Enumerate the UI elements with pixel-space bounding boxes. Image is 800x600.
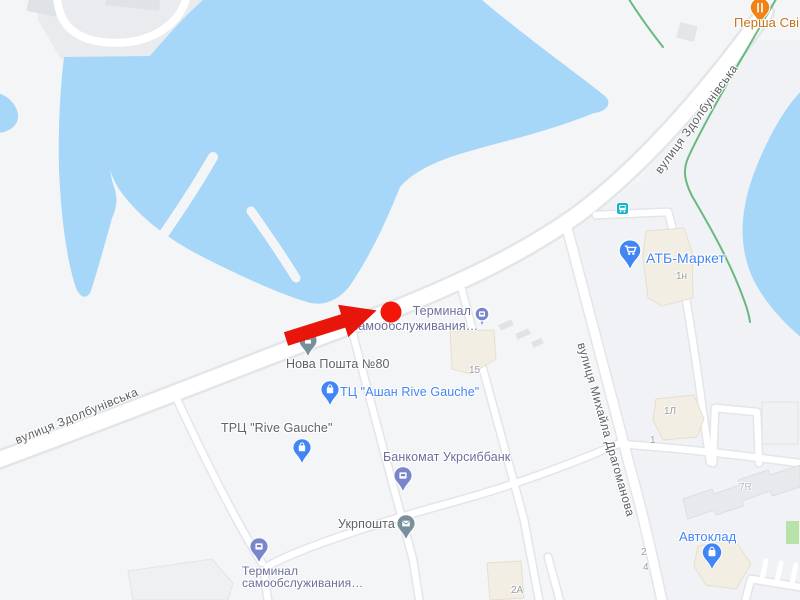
bus-stop-icon[interactable] — [616, 202, 629, 215]
house-number: 1Л — [664, 406, 676, 417]
poi-label-terminal-bottom[interactable]: Терминал самообслуживания… — [242, 566, 363, 589]
house-number: 7R — [739, 482, 752, 493]
atb-market-pin[interactable] — [618, 239, 642, 270]
atm-terminal-icon — [479, 311, 485, 316]
house-number: 4 — [643, 562, 649, 573]
house-number: 2 — [641, 547, 647, 558]
terminal-bottom-pin[interactable] — [249, 537, 269, 563]
poi-label-rive-gauche[interactable]: ТРЦ "Rive Gauche" — [221, 421, 333, 436]
atm-terminal-icon — [255, 543, 262, 549]
nova-poshta-pin[interactable] — [298, 331, 318, 357]
poi-label-avtoklad[interactable]: Автоклад — [679, 529, 736, 544]
parcel-icon — [305, 338, 311, 344]
envelope-icon — [402, 521, 410, 527]
poi-label-auchan[interactable]: ТЦ "Ашан Rive Gauche" — [340, 385, 479, 400]
house-number: 15 — [469, 365, 480, 376]
poi-label-nova-poshta[interactable]: Нова Пошта №80 — [286, 357, 390, 372]
auchan-pin[interactable] — [320, 380, 340, 406]
poi-label-atb-market[interactable]: АТБ-Маркет — [646, 251, 725, 266]
ukrsibbank-atm-pin[interactable] — [393, 466, 413, 492]
poi-label-ukrposhta[interactable]: Укрпошта — [338, 517, 395, 532]
map-viewport[interactable]: вулиця Здолбунівська вулиця Здолбунівськ… — [0, 0, 800, 600]
poi-label-persha-svi[interactable]: Перша Сві — [734, 15, 799, 30]
house-number: 1н — [676, 271, 687, 282]
avtoklad-pin[interactable] — [701, 542, 723, 570]
poi-label-terminal-center[interactable]: Терминал самообслуживания… — [352, 304, 471, 334]
house-number: 1 — [650, 435, 656, 446]
rive-gauche-pin[interactable] — [292, 438, 312, 464]
ukrposhta-pin[interactable] — [396, 514, 416, 540]
poi-label-ukrsibbank-atm[interactable]: Банкомат Укрсиббанк — [383, 450, 510, 465]
atm-icon — [399, 472, 406, 478]
house-number: 2А — [511, 585, 523, 596]
map-canvas[interactable] — [0, 0, 800, 600]
